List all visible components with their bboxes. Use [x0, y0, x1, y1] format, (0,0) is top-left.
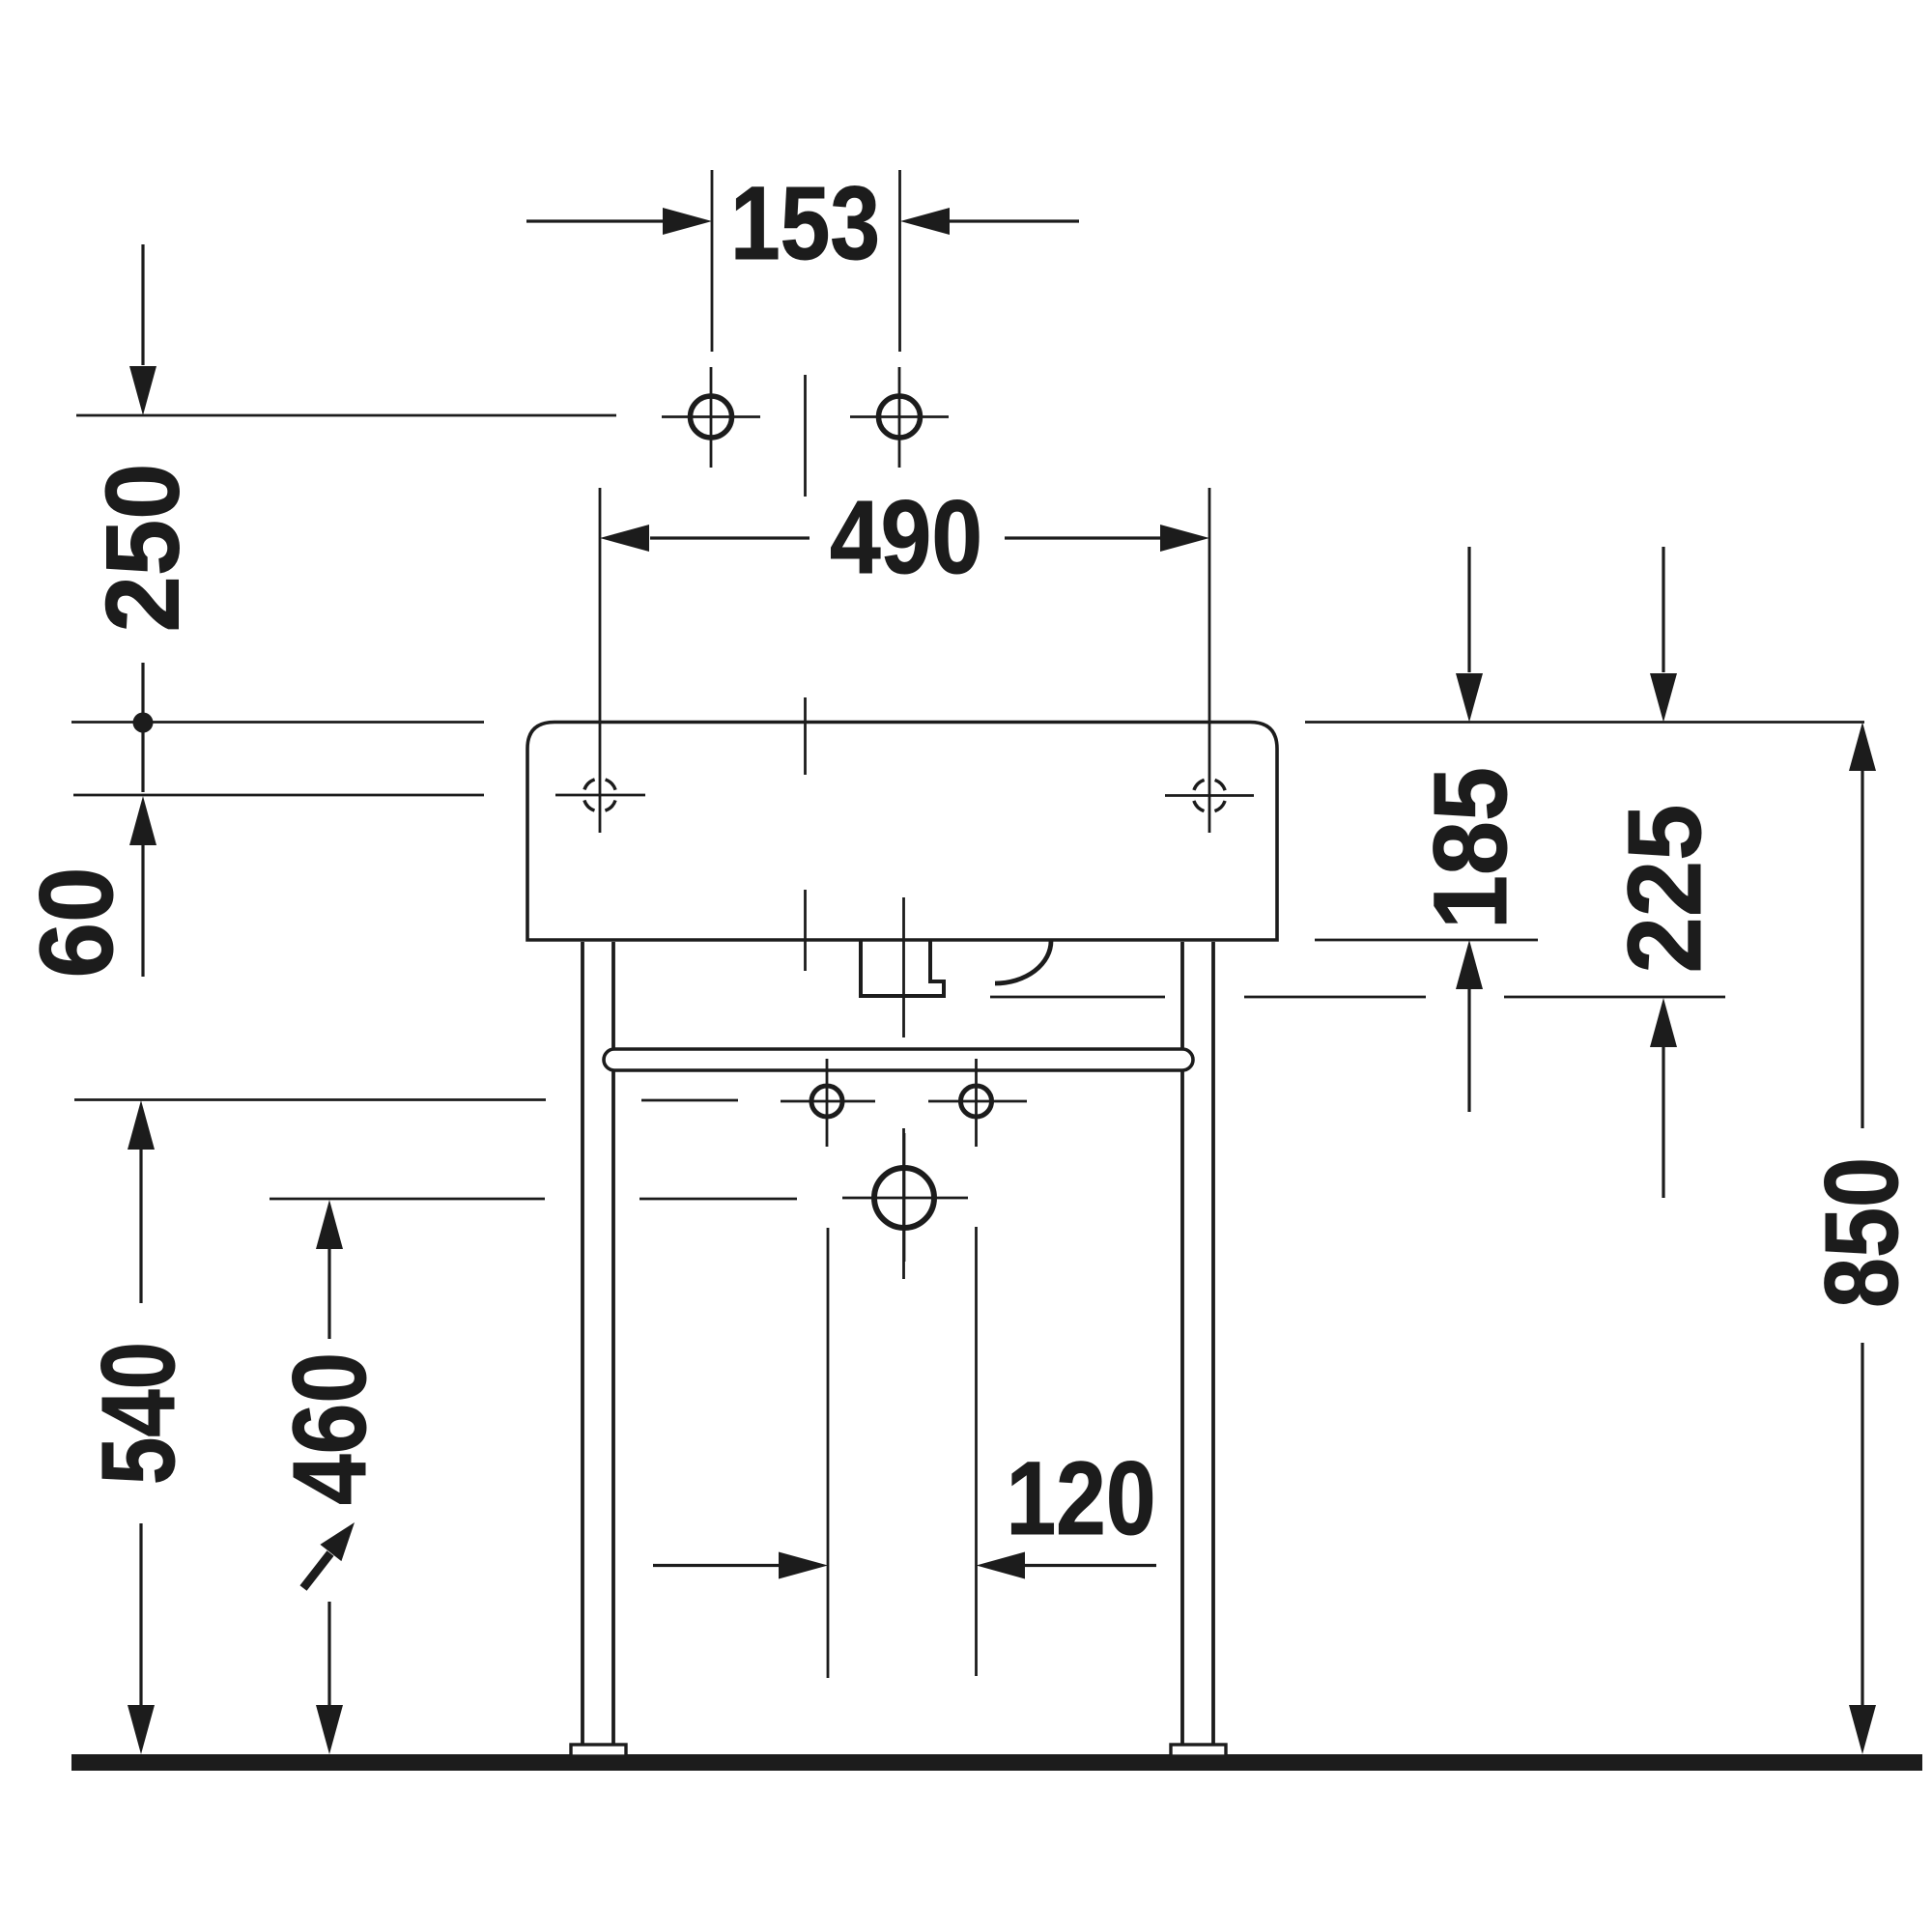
- svg-text:60: 60: [17, 867, 134, 979]
- svg-text:185: 185: [1411, 767, 1528, 929]
- svg-text:250: 250: [84, 464, 201, 633]
- svg-text:153: 153: [730, 164, 880, 281]
- svg-text:225: 225: [1605, 805, 1722, 974]
- svg-text:120: 120: [1007, 1439, 1156, 1556]
- svg-text:490: 490: [830, 478, 982, 595]
- svg-text:850: 850: [1803, 1157, 1919, 1308]
- svg-text:460: 460: [270, 1352, 387, 1505]
- svg-text:540: 540: [79, 1342, 196, 1485]
